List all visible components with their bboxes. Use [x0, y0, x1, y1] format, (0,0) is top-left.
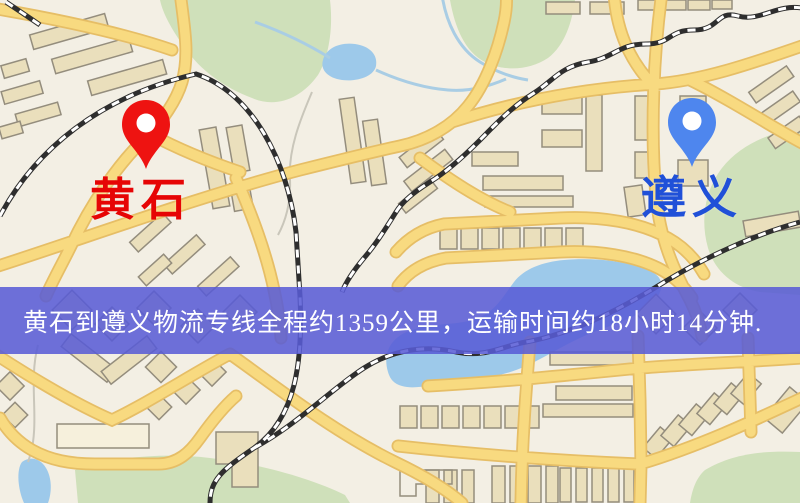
destination-pin-icon [667, 97, 717, 169]
street-map [0, 0, 800, 503]
destination-label: 遵义 [641, 176, 743, 221]
map-image: 黄石 遵义 黄石到遵义物流专线全程约1359公里，运输时间约18小时14分钟. [0, 0, 800, 503]
info-banner: 黄石到遵义物流专线全程约1359公里，运输时间约18小时14分钟. [0, 287, 800, 354]
banner-text: 黄石到遵义物流专线全程约1359公里，运输时间约18小时14分钟. [0, 303, 762, 339]
origin-label: 黄石 [90, 178, 192, 223]
origin-pin-icon [121, 99, 171, 171]
